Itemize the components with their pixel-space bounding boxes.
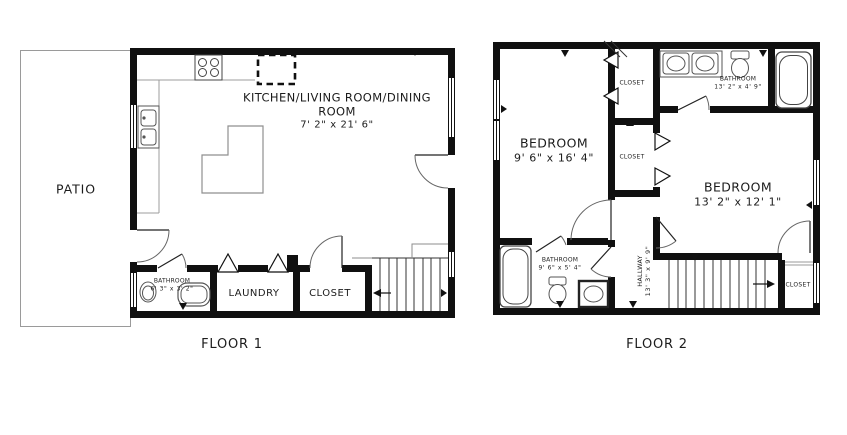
bathroom-top-dims: 13' 2" x 4' 9" (714, 83, 762, 91)
bathroom-top-label: BATHROOM 13' 2" x 4' 9" (714, 76, 762, 91)
bedroom1-name: BEDROOM (514, 135, 594, 150)
floor2-window-closet (813, 263, 820, 303)
bathroom1-name: BATHROOM (150, 278, 193, 286)
sofa-icon (202, 126, 263, 193)
double-vanity-icon (660, 51, 722, 77)
floor2-window-bedroom1-b (493, 121, 500, 160)
bathroom1-label: BATHROOM 6' 3" x 3' 2" (150, 278, 193, 293)
main-room-label: KITCHEN/LIVING ROOM/DINING ROOM 7' 2" x … (237, 90, 437, 131)
floor2-window-bedroom1-a (493, 80, 500, 119)
bathroom-top-name: BATHROOM (714, 76, 762, 84)
floor1-door-gaps (130, 155, 455, 262)
toilet-icon (549, 277, 566, 304)
hallway-label: HALLWAY 13' 3" x 9' 9" (636, 246, 652, 297)
bedroom1-dims: 9' 6" x 16' 4" (514, 151, 594, 164)
bedroom2-label: BEDROOM 13' 2" x 12' 1" (694, 179, 782, 208)
bedroom2-dims: 13' 2" x 12' 1" (694, 195, 782, 208)
bathroom1-dims: 6' 3" x 3' 2" (150, 285, 193, 293)
kitchen-sink-icon (138, 106, 159, 148)
closet-f1-label: CLOSET (309, 288, 351, 300)
appliance-dashed-box (258, 55, 295, 84)
bathtub-icon (776, 52, 811, 108)
toilet-icon (731, 51, 749, 78)
closet-shelf-lines (785, 262, 813, 265)
bathroom-bottom-name: BATHROOM (538, 257, 581, 265)
bedroom2-name: BEDROOM (694, 179, 782, 194)
closet-top-label: CLOSET (619, 79, 644, 86)
main-room-name: KITCHEN/LIVING ROOM/DINING ROOM (237, 90, 437, 118)
hallway-dims: 13' 3" x 9' 9" (644, 246, 652, 297)
floor1-window-kitchen (130, 105, 137, 148)
bedroom1-label: BEDROOM 9' 6" x 16' 4" (514, 135, 594, 164)
floor1-window-stairs (448, 252, 455, 277)
hallway-name: HALLWAY (636, 246, 644, 297)
floor1-window-bathroom (130, 273, 137, 307)
floor2-title: FLOOR 2 (626, 337, 688, 353)
bathroom-bottom-label: BATHROOM 9' 6" x 5' 4" (538, 257, 581, 272)
floor1-doors (137, 155, 448, 268)
bathroom-bottom-dims: 9' 6" x 5' 4" (538, 264, 581, 272)
stove-icon (195, 55, 222, 80)
closet-bottom-label: CLOSET (785, 281, 810, 288)
bathtub-icon (500, 246, 531, 307)
floorplan-drawing (0, 0, 847, 435)
vanity-sink-icon (579, 281, 608, 307)
floor2-stairs (669, 260, 775, 308)
floorplan-canvas: PATIO KITCHEN/LIVING ROOM/DINING ROOM 7'… (0, 0, 847, 435)
closet-mid-label: CLOSET (619, 153, 644, 160)
floor2-window-bedroom2 (813, 160, 820, 205)
laundry-label: LAUNDRY (228, 288, 279, 300)
floor1-window-living (448, 78, 455, 137)
floor1-title: FLOOR 1 (201, 337, 263, 353)
patio-label: PATIO (56, 182, 96, 197)
main-room-dims: 7' 2" x 21' 6" (237, 119, 437, 131)
